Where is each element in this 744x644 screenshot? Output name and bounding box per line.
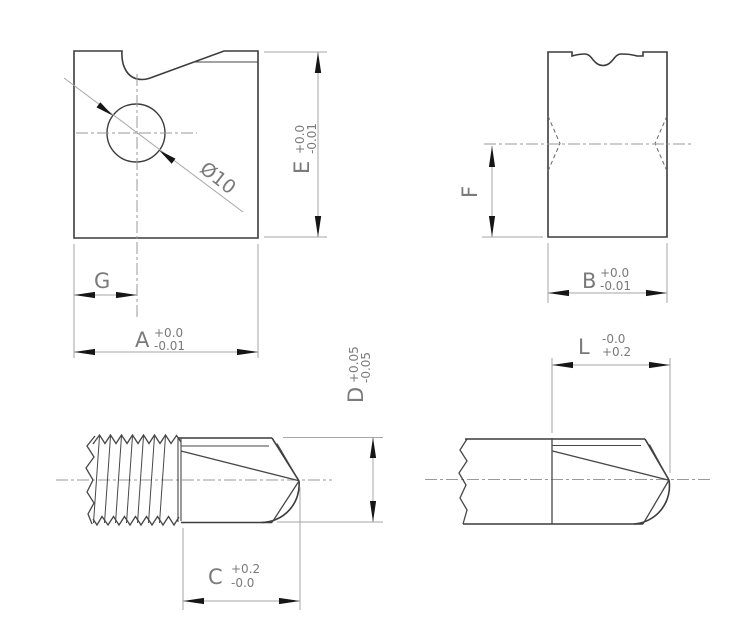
drawing-canvas: Ø10 E +0.0 -0.01 G <box>0 0 744 644</box>
tip-chamfer-bottom <box>643 480 669 524</box>
dim-l-arrow-right <box>649 362 670 368</box>
dim-b-letter: B <box>582 269 596 293</box>
dim-f: F <box>458 146 543 237</box>
dim-g-letter: G <box>94 269 110 293</box>
dim-l-arrow-left <box>552 362 573 368</box>
break-line-tip <box>459 439 467 524</box>
dim-f-arrow-up <box>489 146 495 167</box>
dim-f-label: F <box>458 186 482 198</box>
dim-a-arrow-left <box>74 349 95 355</box>
dim-e-tol-lower: -0.01 <box>305 123 319 154</box>
diameter-leader-line <box>64 78 243 212</box>
dim-c-tol-upper: +0.2 <box>231 562 260 576</box>
screw-view: D +0.05 -0.05 C +0.2 -0.0 <box>56 346 383 610</box>
dim-b-arrow-right <box>646 290 667 296</box>
tip-flute-line <box>553 451 669 480</box>
dim-d-arrow-down <box>370 501 376 522</box>
diameter-arrowhead-upper <box>97 102 113 115</box>
tip-chamfer-top-inner <box>650 445 668 478</box>
dim-c-tol-lower: -0.0 <box>231 576 254 590</box>
tip-view: L -0.0 +0.2 <box>425 332 710 524</box>
flute-line <box>181 451 298 481</box>
dim-l-tol-lower: +0.2 <box>602 345 631 359</box>
dim-f-letter: F <box>458 186 482 198</box>
engineering-drawing: Ø10 E +0.0 -0.01 G <box>0 0 744 644</box>
dim-g-arrow-left <box>74 292 95 298</box>
dim-d-label: D +0.05 -0.05 <box>344 346 373 403</box>
dim-e-arrow-down <box>315 216 321 237</box>
dim-b-tol-upper: +0.0 <box>600 266 629 280</box>
point-heel-arc <box>262 481 299 523</box>
dim-e-arrow-up <box>315 52 321 73</box>
dim-l-letter: L <box>578 335 590 359</box>
dim-e-label: E +0.0 -0.01 <box>290 123 319 174</box>
dim-e: E +0.0 -0.01 <box>264 52 327 237</box>
front-view-outline <box>74 51 258 238</box>
dim-d-tol-lower: -0.05 <box>359 352 373 383</box>
dim-b-arrow-left <box>548 290 569 296</box>
side-view-outline <box>548 52 667 237</box>
dim-a-letter: A <box>135 328 150 352</box>
dim-e-letter: E <box>290 161 314 174</box>
dim-c-arrow-right <box>279 598 300 604</box>
dim-a-tol-lower: -0.01 <box>154 339 185 353</box>
side-view: F B +0.0 -0.01 <box>458 52 694 303</box>
front-view: Ø10 E +0.0 -0.01 G <box>64 51 327 358</box>
dim-c-letter: C <box>208 565 223 589</box>
dim-f-arrow-down <box>489 216 495 237</box>
tip-heel-arc <box>634 480 669 524</box>
dim-d: D +0.05 -0.05 <box>277 346 383 522</box>
dim-c-arrow-left <box>183 598 204 604</box>
thread-crest-top <box>93 435 181 444</box>
dim-a-arrow-right <box>237 349 258 355</box>
dim-d-arrow-up <box>370 438 376 459</box>
dim-d-letter: D <box>344 387 368 403</box>
dim-l-tol-upper: -0.0 <box>602 332 625 346</box>
dim-g-arrow-right <box>116 292 137 298</box>
thread-crest-bottom <box>93 517 179 526</box>
dim-a: A +0.0 -0.01 <box>74 326 258 355</box>
dim-a-tol-upper: +0.0 <box>154 326 183 340</box>
dim-b: B +0.0 -0.01 <box>548 243 667 303</box>
point-chamfer-top-inner <box>277 444 298 479</box>
diameter-arrowhead-lower <box>159 150 175 163</box>
dim-b-tol-lower: -0.01 <box>600 279 631 293</box>
